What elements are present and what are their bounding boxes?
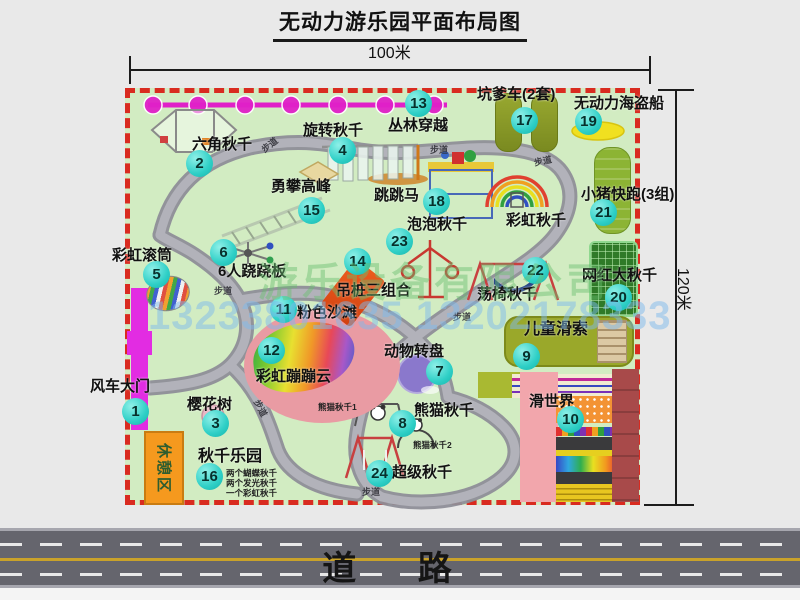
poi-label-climbing-peak: 勇攀高峰: [271, 179, 331, 194]
slide-world-black-band-1: [556, 437, 618, 450]
panda-swing-2-note: 熊猫秋千2: [413, 441, 452, 450]
poi-badge-19: 19: [575, 108, 602, 135]
page-title: 无动力游乐园平面布局图: [273, 6, 527, 42]
poi-badge-16: 16: [196, 463, 223, 490]
poi-badge-7: 7: [426, 358, 453, 385]
swing-park-note-3: 一个彩虹秋千: [226, 489, 277, 498]
poi-label-pit-car: 坑爹车(2套): [477, 87, 555, 102]
dimension-width-label: 100米: [368, 46, 411, 62]
poi-label-windmill-gate: 风车大门: [90, 379, 150, 394]
poi-label-panda-swing: 熊猫秋千: [414, 403, 474, 418]
poi-badge-9: 9: [513, 343, 540, 370]
poi-badge-2: 2: [186, 150, 213, 177]
poi-badge-6: 6: [210, 239, 237, 266]
swing-park-note-1: 两个蝴蝶秋千: [226, 469, 277, 478]
trail-label-7: 步道: [362, 488, 380, 497]
poi-label-rainbow-cloud: 彩虹蹦蹦云: [256, 369, 331, 384]
slide-world-pink-band: [520, 372, 558, 502]
poi-badge-4: 4: [329, 137, 356, 164]
poi-label-bubble-swing: 泡泡秋千: [407, 217, 467, 232]
poi-badge-18: 18: [423, 188, 450, 215]
title-row: 无动力游乐园平面布局图: [0, 6, 800, 42]
poi-badge-24: 24: [366, 460, 393, 487]
poi-label-cherry-tree: 樱花树: [187, 397, 232, 412]
road-strip: 道 路: [0, 528, 800, 588]
poi-label-rainbow-swing: 彩虹秋千: [506, 213, 566, 228]
poi-badge-21: 21: [590, 199, 617, 226]
rest-area-box: 休憩区: [144, 431, 184, 505]
watermark-phone-text: 13233801635 13202178333: [148, 294, 672, 339]
poi-badge-3: 3: [202, 410, 229, 437]
road-label: 道 路: [0, 541, 800, 590]
poi-badge-12: 12: [258, 337, 285, 364]
poi-label-jungle-crossing: 丛林穿越: [388, 118, 448, 133]
poi-badge-10: 10: [557, 406, 584, 433]
slide-world-black-band-2: [556, 472, 618, 484]
poi-badge-1: 1: [122, 398, 149, 425]
poi-label-rotating-swing: 旋转秋千: [303, 123, 363, 138]
poi-label-piggy-run: 小猪快跑(3组): [581, 187, 674, 202]
poi-badge-8: 8: [389, 410, 416, 437]
slide-world-red-tower: [612, 369, 639, 502]
poi-badge-15: 15: [298, 197, 325, 224]
poi-label-jumping-horse: 跳跳马: [374, 188, 419, 203]
slide-world-rainbow-band: [556, 456, 618, 472]
slide-world-wavy-band: [556, 484, 618, 502]
trail-label-2: 步道: [430, 146, 448, 155]
poi-badge-17: 17: [511, 107, 538, 134]
dimension-height-label: 120米: [674, 268, 690, 311]
poi-label-rainbow-roller: 彩虹滚筒: [112, 248, 172, 263]
poi-label-super-swing: 超级秋千: [392, 465, 452, 480]
poi-badge-13: 13: [405, 90, 432, 117]
poi-label-animal-turntable: 动物转盘: [384, 344, 444, 359]
swing-park-note-2: 两个发光秋千: [226, 479, 277, 488]
poi-badge-5: 5: [143, 261, 170, 288]
rest-area-label: 休憩区: [154, 442, 175, 493]
park-layout-poster: 无动力游乐园平面布局图 100米 120米: [0, 0, 800, 600]
panda-swing-1-note: 熊猫秋千1: [318, 403, 357, 412]
